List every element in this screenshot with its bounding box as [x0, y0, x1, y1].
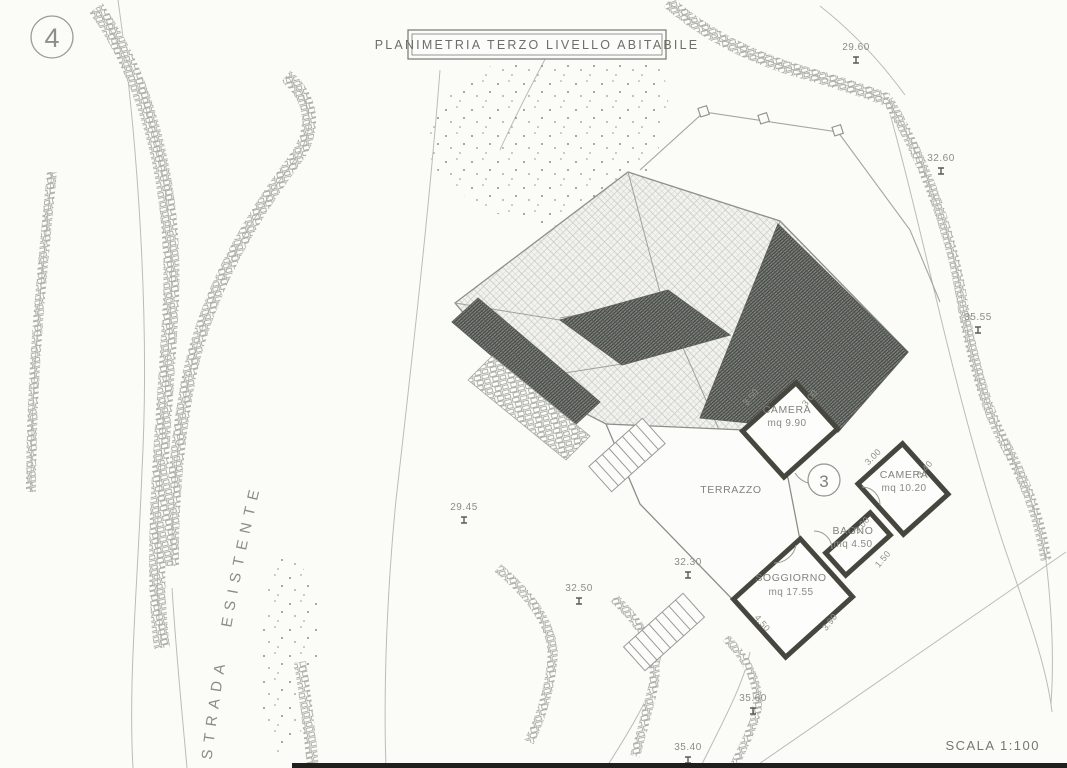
- room-area-soggiorno: mq 17.55: [769, 587, 814, 598]
- scale-label: SCALA 1:100: [945, 738, 1040, 753]
- plate-number-marker: 4: [31, 16, 73, 58]
- road-label: STRADA ESISTENTE: [199, 482, 265, 761]
- dim-label-6: 1.50: [873, 549, 893, 570]
- svg-text:32.30: 32.30: [674, 557, 702, 568]
- svg-text:STRADA ESISTENTE: STRADA ESISTENTE: [199, 482, 265, 761]
- room-area-bagno: mq 4.50: [834, 539, 873, 550]
- elevation-marker: 29.60: [842, 42, 870, 63]
- svg-text:29.45: 29.45: [450, 502, 478, 513]
- road-band-below-2: [614, 598, 655, 756]
- elevation-marker: 29.45: [450, 502, 478, 523]
- svg-text:35.55: 35.55: [964, 312, 992, 323]
- elevation-marker: 35.40: [674, 742, 702, 763]
- architectural-plan-sheet: CAMERA mq 9.90 CAMERA mq 10.20 TERRAZZO …: [0, 0, 1067, 768]
- title-block: PLANIMETRIA TERZO LIVELLO ABITABILE: [375, 30, 700, 59]
- elevation-marker: 32.30: [674, 557, 702, 578]
- elevation-marker: 35.60: [739, 693, 767, 714]
- svg-text:35.40: 35.40: [674, 742, 702, 753]
- room-label-soggiorno: SOGGIORNO: [755, 572, 826, 584]
- plate-number: 4: [44, 23, 59, 53]
- road-band-left-outer: [96, 8, 171, 648]
- detail-marker-3: 3: [808, 464, 840, 496]
- drawing-title: PLANIMETRIA TERZO LIVELLO ABITABILE: [375, 38, 700, 52]
- site-plan-drawing: CAMERA mq 9.90 CAMERA mq 10.20 TERRAZZO …: [0, 0, 1067, 768]
- road-band-far-left: [31, 172, 52, 492]
- elevation-marker: 32.50: [565, 583, 593, 604]
- detail-number: 3: [819, 472, 828, 491]
- room-area-camera-1: mq 9.90: [768, 418, 807, 429]
- scan-edge: [292, 763, 1067, 768]
- road-band-below-1: [498, 568, 553, 742]
- elevation-marker: 32.60: [927, 153, 955, 174]
- room-area-camera-2: mq 10.20: [882, 483, 927, 494]
- svg-text:29.60: 29.60: [842, 42, 870, 53]
- road-band-left-inner: [172, 76, 309, 566]
- svg-text:32.60: 32.60: [927, 153, 955, 164]
- room-label-terrazzo: TERRAZZO: [700, 484, 761, 496]
- svg-text:32.50: 32.50: [565, 583, 593, 594]
- stairs-lower: [624, 593, 705, 670]
- svg-text:35.60: 35.60: [739, 693, 767, 704]
